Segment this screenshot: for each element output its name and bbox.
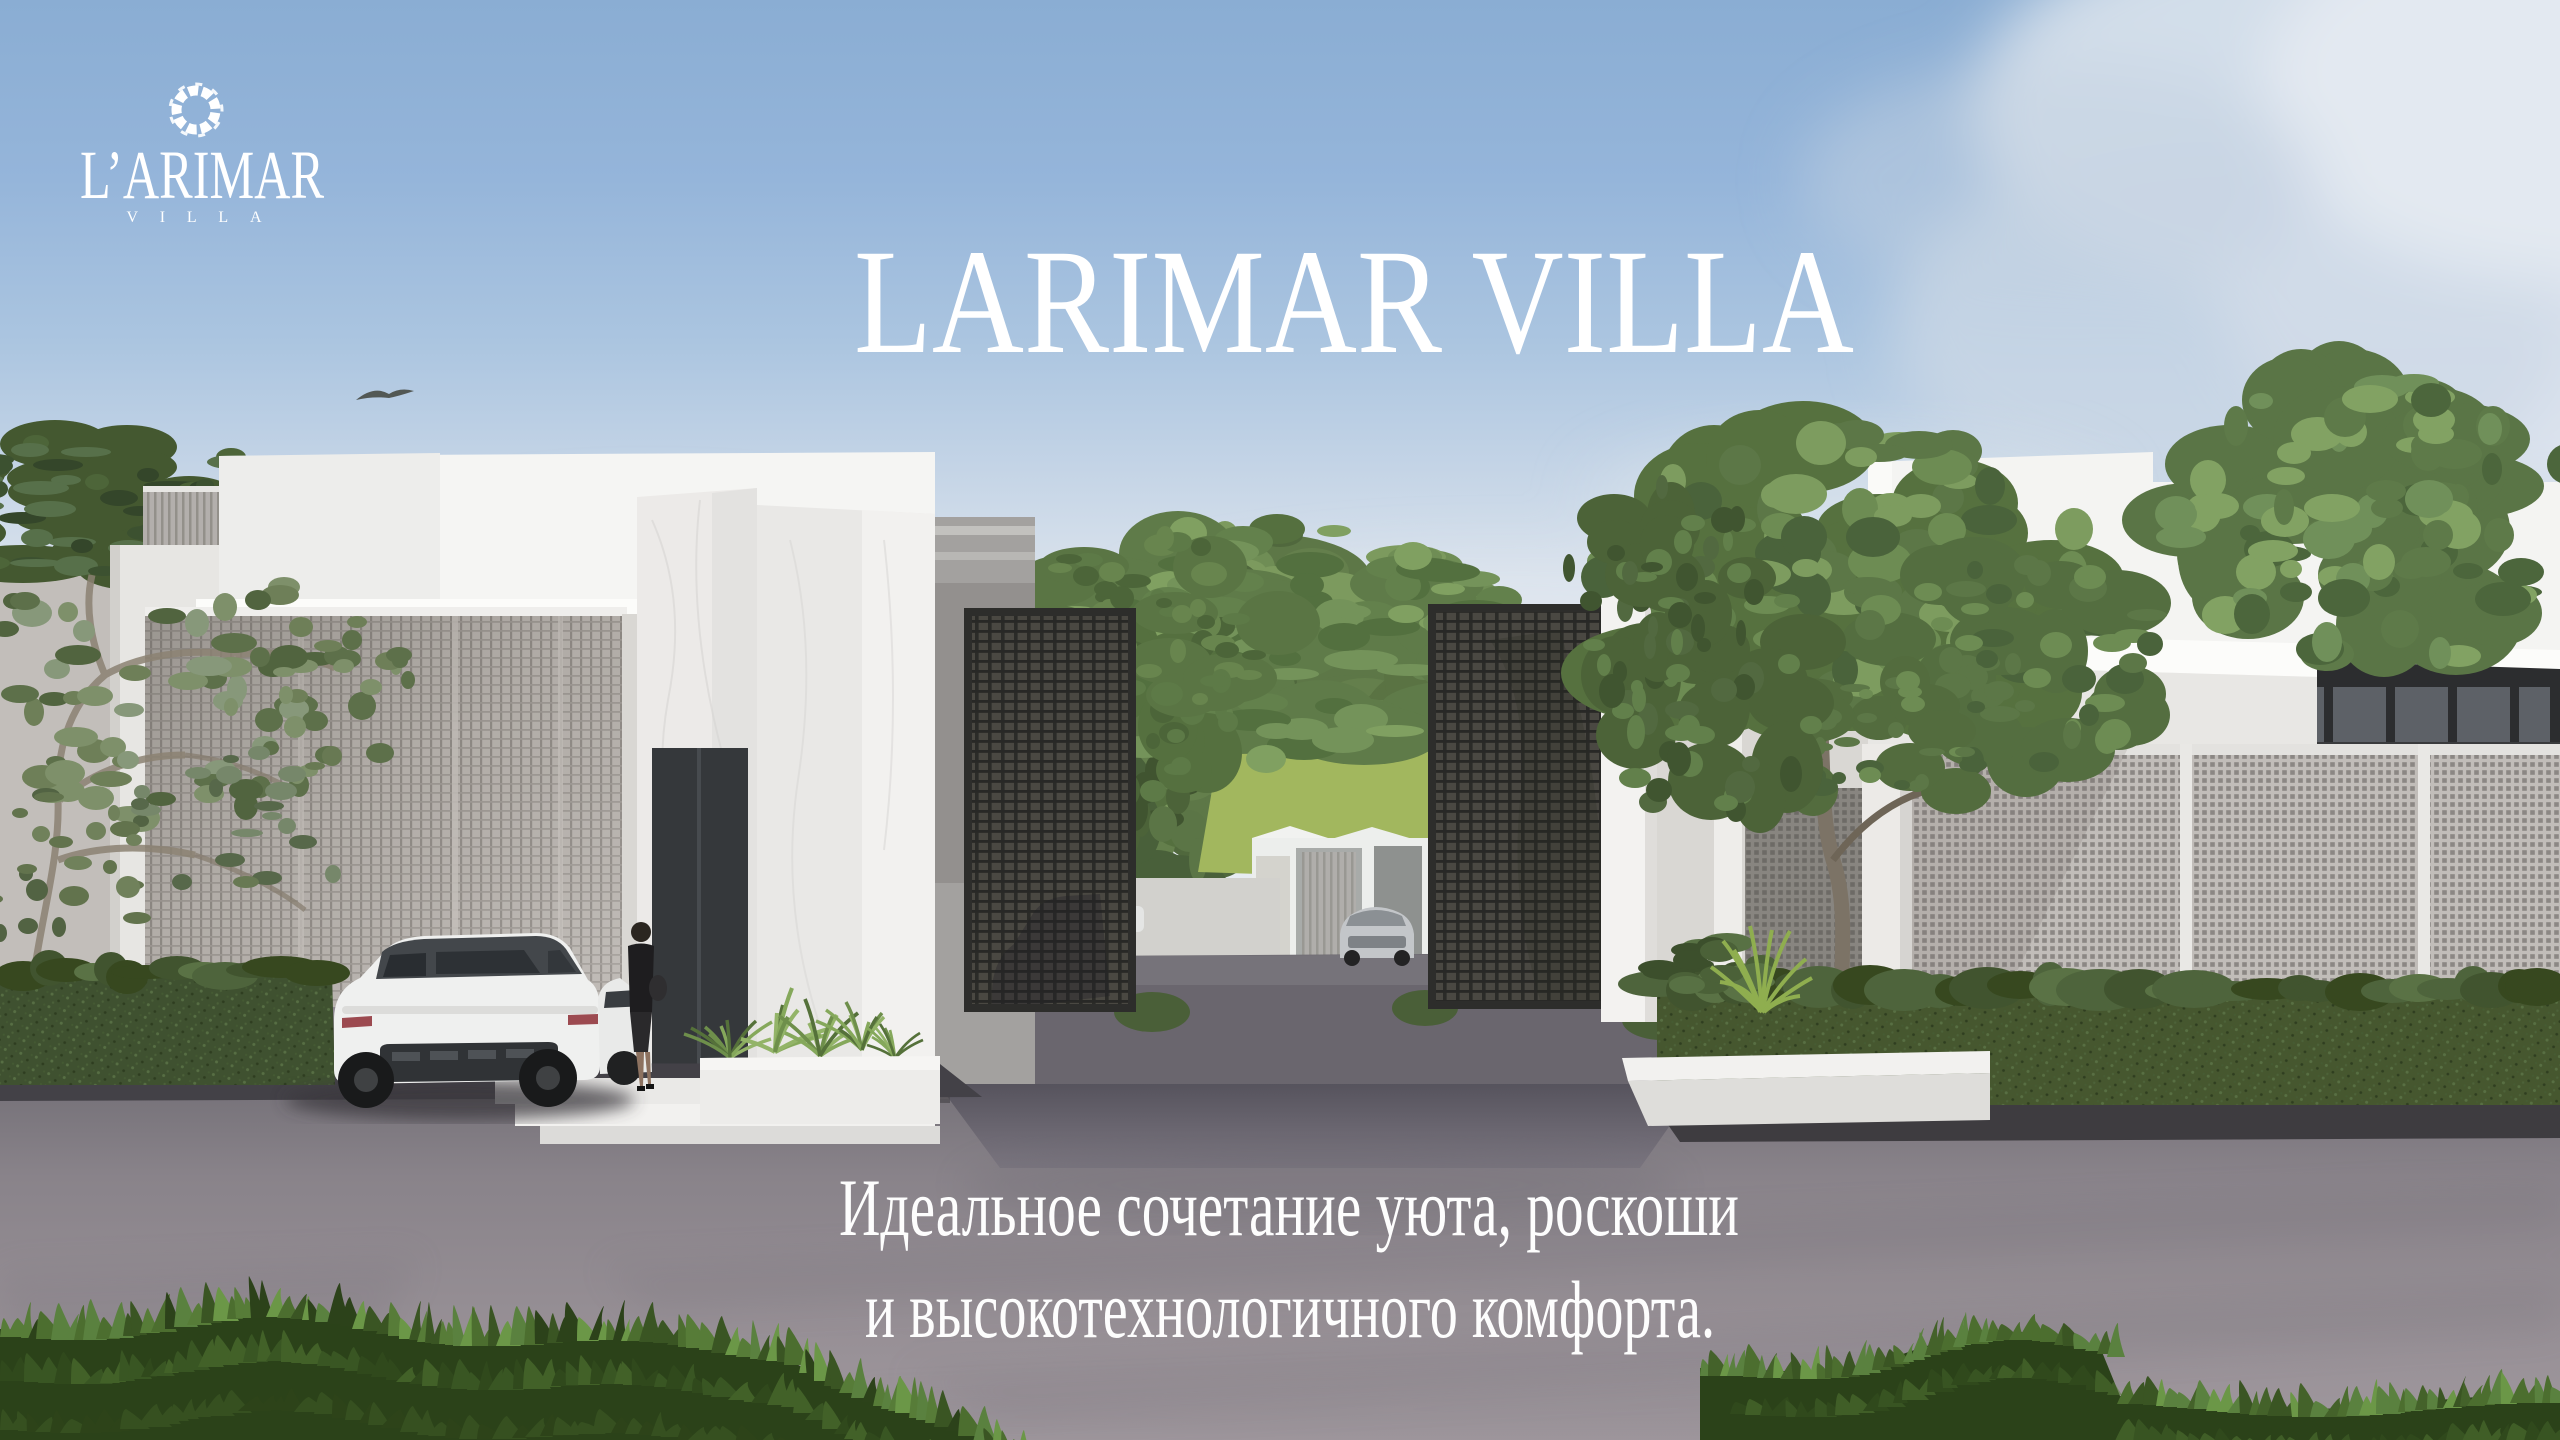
svg-text:и высокотехнологичного комфорт: и высокотехнологичного комфорта. [865, 1264, 1715, 1355]
svg-text:L’ARIMAR: L’ARIMAR [80, 137, 324, 213]
svg-text:LARIMAR VILLA: LARIMAR VILLA [854, 219, 1854, 385]
svg-text:Идеальное сочетание уюта, роск: Идеальное сочетание уюта, роскоши [839, 1162, 1739, 1253]
